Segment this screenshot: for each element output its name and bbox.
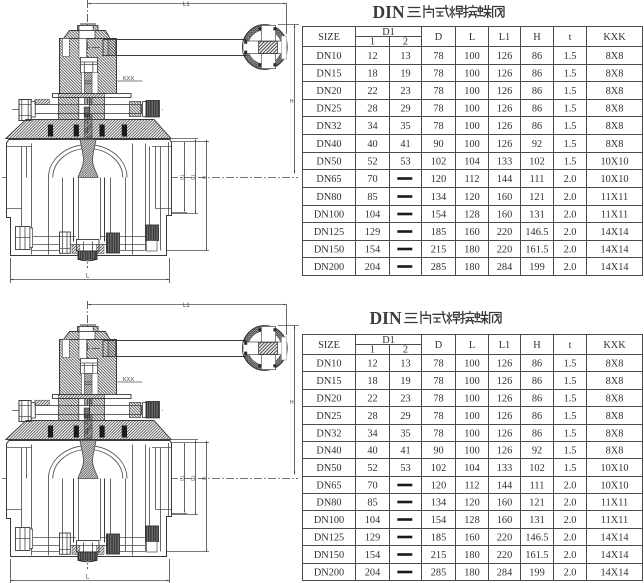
svg-text:2.0: 2.0 bbox=[564, 227, 577, 238]
svg-text:10X10: 10X10 bbox=[600, 481, 628, 492]
svg-text:220: 220 bbox=[497, 245, 512, 256]
svg-text:53: 53 bbox=[400, 463, 410, 474]
svg-text:1.5: 1.5 bbox=[564, 376, 577, 387]
svg-text:1.5: 1.5 bbox=[564, 51, 577, 62]
svg-text:L1: L1 bbox=[499, 32, 510, 43]
svg-text:126: 126 bbox=[497, 86, 512, 97]
svg-text:2.0: 2.0 bbox=[564, 210, 577, 221]
svg-text:2.0: 2.0 bbox=[564, 245, 577, 256]
svg-text:134: 134 bbox=[431, 192, 446, 203]
svg-text:86: 86 bbox=[532, 104, 542, 115]
svg-text:100: 100 bbox=[464, 429, 479, 440]
svg-text:111: 111 bbox=[530, 174, 545, 185]
svg-text:285: 285 bbox=[431, 568, 446, 579]
svg-text:DN25: DN25 bbox=[316, 411, 341, 422]
svg-text:t: t bbox=[569, 32, 572, 43]
svg-text:1.5: 1.5 bbox=[564, 157, 577, 168]
svg-text:DN20: DN20 bbox=[316, 86, 341, 97]
svg-text:160: 160 bbox=[497, 192, 512, 203]
svg-text:126: 126 bbox=[497, 359, 512, 370]
svg-text:100: 100 bbox=[464, 394, 479, 405]
svg-text:100: 100 bbox=[464, 359, 479, 370]
svg-text:199: 199 bbox=[529, 568, 544, 579]
svg-text:160: 160 bbox=[497, 515, 512, 526]
svg-text:78: 78 bbox=[433, 394, 443, 405]
svg-text:154: 154 bbox=[431, 515, 446, 526]
svg-text:126: 126 bbox=[497, 446, 512, 457]
svg-text:DN100: DN100 bbox=[314, 210, 344, 221]
svg-text:126: 126 bbox=[497, 104, 512, 115]
svg-text:DN10: DN10 bbox=[316, 359, 341, 370]
svg-text:8X8: 8X8 bbox=[606, 359, 624, 370]
svg-text:23: 23 bbox=[400, 86, 410, 97]
svg-text:126: 126 bbox=[497, 69, 512, 80]
svg-text:53: 53 bbox=[400, 157, 410, 168]
svg-text:2.0: 2.0 bbox=[564, 192, 577, 203]
svg-text:128: 128 bbox=[464, 515, 479, 526]
svg-text:78: 78 bbox=[433, 429, 443, 440]
svg-text:8X8: 8X8 bbox=[606, 104, 624, 115]
svg-text:8X8: 8X8 bbox=[606, 376, 624, 387]
svg-text:DN40: DN40 bbox=[316, 139, 341, 150]
svg-text:154: 154 bbox=[365, 245, 380, 256]
svg-text:134: 134 bbox=[431, 498, 446, 509]
svg-text:100: 100 bbox=[464, 411, 479, 422]
svg-text:L1: L1 bbox=[499, 340, 510, 351]
svg-text:14X14: 14X14 bbox=[600, 262, 628, 273]
svg-text:H: H bbox=[533, 340, 541, 351]
svg-text:100: 100 bbox=[464, 121, 479, 132]
svg-text:DN50: DN50 bbox=[316, 463, 341, 474]
svg-text:2.0: 2.0 bbox=[564, 262, 577, 273]
svg-text:220: 220 bbox=[497, 533, 512, 544]
svg-text:199: 199 bbox=[529, 262, 544, 273]
svg-text:28: 28 bbox=[367, 104, 377, 115]
svg-text:92: 92 bbox=[532, 446, 542, 457]
svg-text:126: 126 bbox=[497, 376, 512, 387]
svg-text:78: 78 bbox=[433, 86, 443, 97]
svg-text:78: 78 bbox=[433, 51, 443, 62]
svg-text:1.5: 1.5 bbox=[564, 104, 577, 115]
svg-text:112: 112 bbox=[464, 481, 479, 492]
svg-text:29: 29 bbox=[400, 104, 410, 115]
svg-text:120: 120 bbox=[464, 192, 479, 203]
svg-text:100: 100 bbox=[464, 51, 479, 62]
svg-text:284: 284 bbox=[497, 262, 512, 273]
svg-text:129: 129 bbox=[365, 533, 380, 544]
svg-text:100: 100 bbox=[464, 139, 479, 150]
svg-text:34: 34 bbox=[367, 121, 377, 132]
svg-text:DIN: DIN bbox=[370, 308, 402, 328]
svg-text:85: 85 bbox=[367, 498, 377, 509]
svg-text:t: t bbox=[569, 340, 572, 351]
svg-text:126: 126 bbox=[497, 121, 512, 132]
svg-text:KXK: KXK bbox=[603, 340, 626, 351]
svg-text:L: L bbox=[469, 340, 475, 351]
svg-text:215: 215 bbox=[431, 550, 446, 561]
svg-text:DN25: DN25 bbox=[316, 104, 341, 115]
svg-text:121: 121 bbox=[529, 192, 544, 203]
svg-text:111: 111 bbox=[530, 481, 545, 492]
svg-text:112: 112 bbox=[464, 174, 479, 185]
svg-text:146.5: 146.5 bbox=[525, 227, 548, 238]
svg-text:2.0: 2.0 bbox=[564, 498, 577, 509]
svg-text:144: 144 bbox=[497, 174, 512, 185]
svg-text:70: 70 bbox=[367, 481, 377, 492]
svg-text:100: 100 bbox=[464, 69, 479, 80]
svg-text:H: H bbox=[533, 32, 541, 43]
svg-text:1.5: 1.5 bbox=[564, 86, 577, 97]
svg-text:DN20: DN20 bbox=[316, 394, 341, 405]
svg-text:128: 128 bbox=[464, 210, 479, 221]
svg-text:185: 185 bbox=[431, 533, 446, 544]
svg-text:1.5: 1.5 bbox=[564, 359, 577, 370]
svg-text:1: 1 bbox=[370, 37, 375, 48]
svg-text:104: 104 bbox=[365, 210, 380, 221]
svg-text:DN80: DN80 bbox=[316, 192, 341, 203]
svg-text:41: 41 bbox=[400, 139, 410, 150]
svg-text:285: 285 bbox=[431, 262, 446, 273]
svg-text:28: 28 bbox=[367, 411, 377, 422]
svg-text:1.5: 1.5 bbox=[564, 463, 577, 474]
svg-text:11X11: 11X11 bbox=[601, 192, 628, 203]
svg-text:DN125: DN125 bbox=[314, 227, 344, 238]
svg-text:133: 133 bbox=[497, 463, 512, 474]
svg-text:18: 18 bbox=[367, 376, 377, 387]
svg-text:126: 126 bbox=[497, 429, 512, 440]
svg-text:52: 52 bbox=[367, 157, 377, 168]
svg-text:8X8: 8X8 bbox=[606, 446, 624, 457]
svg-text:14X14: 14X14 bbox=[600, 533, 628, 544]
svg-text:131: 131 bbox=[529, 210, 544, 221]
svg-text:18: 18 bbox=[367, 69, 377, 80]
svg-text:78: 78 bbox=[433, 121, 443, 132]
svg-text:35: 35 bbox=[400, 121, 410, 132]
svg-text:154: 154 bbox=[365, 550, 380, 561]
svg-text:8X8: 8X8 bbox=[606, 86, 624, 97]
svg-text:12: 12 bbox=[367, 51, 377, 62]
svg-text:126: 126 bbox=[497, 411, 512, 422]
svg-text:KXK: KXK bbox=[603, 32, 626, 43]
svg-text:DN80: DN80 bbox=[316, 498, 341, 509]
svg-text:11X11: 11X11 bbox=[601, 515, 628, 526]
svg-text:131: 131 bbox=[529, 515, 544, 526]
svg-text:52: 52 bbox=[367, 463, 377, 474]
svg-text:13: 13 bbox=[400, 359, 410, 370]
svg-text:DN100: DN100 bbox=[314, 515, 344, 526]
svg-text:40: 40 bbox=[367, 139, 377, 150]
svg-text:154: 154 bbox=[431, 210, 446, 221]
svg-text:86: 86 bbox=[532, 359, 542, 370]
svg-text:146.5: 146.5 bbox=[525, 533, 548, 544]
svg-text:180: 180 bbox=[464, 245, 479, 256]
svg-text:1.5: 1.5 bbox=[564, 139, 577, 150]
svg-text:DN200: DN200 bbox=[314, 568, 344, 579]
svg-text:100: 100 bbox=[464, 104, 479, 115]
svg-text:160: 160 bbox=[464, 533, 479, 544]
svg-text:185: 185 bbox=[431, 227, 446, 238]
svg-text:SIZE: SIZE bbox=[318, 32, 340, 43]
svg-text:11X11: 11X11 bbox=[601, 498, 628, 509]
svg-text:D1: D1 bbox=[382, 27, 395, 38]
svg-text:D: D bbox=[435, 32, 443, 43]
svg-text:90: 90 bbox=[433, 139, 443, 150]
svg-text:29: 29 bbox=[400, 411, 410, 422]
svg-text:2.0: 2.0 bbox=[564, 568, 577, 579]
svg-text:161.5: 161.5 bbox=[525, 550, 548, 561]
svg-text:78: 78 bbox=[433, 411, 443, 422]
svg-text:85: 85 bbox=[367, 192, 377, 203]
svg-text:129: 129 bbox=[365, 227, 380, 238]
svg-text:40: 40 bbox=[367, 446, 377, 457]
svg-text:126: 126 bbox=[497, 139, 512, 150]
svg-text:121: 121 bbox=[529, 498, 544, 509]
svg-text:13: 13 bbox=[400, 51, 410, 62]
svg-text:180: 180 bbox=[464, 550, 479, 561]
svg-text:DN125: DN125 bbox=[314, 533, 344, 544]
svg-text:14X14: 14X14 bbox=[600, 550, 628, 561]
svg-text:86: 86 bbox=[532, 376, 542, 387]
svg-text:8X8: 8X8 bbox=[606, 139, 624, 150]
svg-text:1.5: 1.5 bbox=[564, 69, 577, 80]
svg-text:1.5: 1.5 bbox=[564, 411, 577, 422]
svg-text:19: 19 bbox=[400, 69, 410, 80]
svg-text:104: 104 bbox=[365, 515, 380, 526]
svg-text:220: 220 bbox=[497, 227, 512, 238]
svg-text:104: 104 bbox=[464, 157, 479, 168]
svg-text:90: 90 bbox=[433, 446, 443, 457]
svg-text:10X10: 10X10 bbox=[600, 157, 628, 168]
svg-text:120: 120 bbox=[431, 481, 446, 492]
svg-text:102: 102 bbox=[529, 463, 544, 474]
svg-text:DN150: DN150 bbox=[314, 245, 344, 256]
svg-text:78: 78 bbox=[433, 376, 443, 387]
svg-text:144: 144 bbox=[497, 481, 512, 492]
svg-text:L: L bbox=[469, 32, 475, 43]
svg-text:86: 86 bbox=[532, 394, 542, 405]
svg-text:204: 204 bbox=[365, 262, 380, 273]
svg-text:1.5: 1.5 bbox=[564, 446, 577, 457]
svg-text:DN15: DN15 bbox=[316, 69, 341, 80]
svg-text:2.0: 2.0 bbox=[564, 481, 577, 492]
svg-text:104: 104 bbox=[464, 463, 479, 474]
svg-text:284: 284 bbox=[497, 568, 512, 579]
svg-text:8X8: 8X8 bbox=[606, 51, 624, 62]
svg-text:8X8: 8X8 bbox=[606, 121, 624, 132]
svg-text:DN65: DN65 bbox=[316, 481, 341, 492]
svg-text:35: 35 bbox=[400, 429, 410, 440]
svg-text:1.5: 1.5 bbox=[564, 121, 577, 132]
svg-text:SIZE: SIZE bbox=[318, 340, 340, 351]
svg-text:8X8: 8X8 bbox=[606, 429, 624, 440]
svg-text:100: 100 bbox=[464, 376, 479, 387]
svg-text:D: D bbox=[435, 340, 443, 351]
svg-text:120: 120 bbox=[464, 498, 479, 509]
svg-text:22: 22 bbox=[367, 394, 377, 405]
svg-text:14X14: 14X14 bbox=[600, 245, 628, 256]
svg-text:86: 86 bbox=[532, 121, 542, 132]
svg-text:126: 126 bbox=[497, 394, 512, 405]
svg-text:23: 23 bbox=[400, 394, 410, 405]
svg-text:10X10: 10X10 bbox=[600, 174, 628, 185]
svg-text:160: 160 bbox=[497, 210, 512, 221]
svg-text:2: 2 bbox=[403, 345, 408, 356]
svg-text:19: 19 bbox=[400, 376, 410, 387]
svg-text:8X8: 8X8 bbox=[606, 69, 624, 80]
svg-text:86: 86 bbox=[532, 51, 542, 62]
svg-text:2.0: 2.0 bbox=[564, 533, 577, 544]
svg-text:D1: D1 bbox=[382, 335, 395, 346]
svg-text:8X8: 8X8 bbox=[606, 394, 624, 405]
svg-text:78: 78 bbox=[433, 359, 443, 370]
svg-text:2.0: 2.0 bbox=[564, 174, 577, 185]
svg-text:DN65: DN65 bbox=[316, 174, 341, 185]
svg-text:DN32: DN32 bbox=[316, 429, 341, 440]
svg-text:1: 1 bbox=[370, 345, 375, 356]
svg-text:78: 78 bbox=[433, 69, 443, 80]
svg-text:1.5: 1.5 bbox=[564, 429, 577, 440]
svg-text:161.5: 161.5 bbox=[525, 245, 548, 256]
svg-text:220: 220 bbox=[497, 550, 512, 561]
svg-text:DN200: DN200 bbox=[314, 262, 344, 273]
svg-text:DN150: DN150 bbox=[314, 550, 344, 561]
svg-text:180: 180 bbox=[464, 262, 479, 273]
svg-text:215: 215 bbox=[431, 245, 446, 256]
svg-text:86: 86 bbox=[532, 411, 542, 422]
svg-text:133: 133 bbox=[497, 157, 512, 168]
svg-text:11X11: 11X11 bbox=[601, 210, 628, 221]
svg-text:204: 204 bbox=[365, 568, 380, 579]
svg-text:120: 120 bbox=[431, 174, 446, 185]
svg-text:70: 70 bbox=[367, 174, 377, 185]
svg-text:14X14: 14X14 bbox=[600, 227, 628, 238]
svg-text:DN15: DN15 bbox=[316, 376, 341, 387]
svg-text:100: 100 bbox=[464, 86, 479, 97]
svg-text:86: 86 bbox=[532, 69, 542, 80]
svg-text:160: 160 bbox=[497, 498, 512, 509]
svg-text:34: 34 bbox=[367, 429, 377, 440]
svg-text:86: 86 bbox=[532, 86, 542, 97]
svg-text:DN40: DN40 bbox=[316, 446, 341, 457]
svg-text:10X10: 10X10 bbox=[600, 463, 628, 474]
svg-text:102: 102 bbox=[431, 463, 446, 474]
svg-text:102: 102 bbox=[529, 157, 544, 168]
svg-text:160: 160 bbox=[464, 227, 479, 238]
svg-text:22: 22 bbox=[367, 86, 377, 97]
svg-text:12: 12 bbox=[367, 359, 377, 370]
svg-text:126: 126 bbox=[497, 51, 512, 62]
svg-text:14X14: 14X14 bbox=[600, 568, 628, 579]
svg-text:86: 86 bbox=[532, 429, 542, 440]
svg-text:2.0: 2.0 bbox=[564, 515, 577, 526]
svg-text:DIN: DIN bbox=[373, 2, 405, 22]
svg-text:100: 100 bbox=[464, 446, 479, 457]
svg-text:2: 2 bbox=[403, 37, 408, 48]
svg-text:78: 78 bbox=[433, 104, 443, 115]
svg-text:DN50: DN50 bbox=[316, 157, 341, 168]
svg-text:92: 92 bbox=[532, 139, 542, 150]
svg-text:2.0: 2.0 bbox=[564, 550, 577, 561]
svg-text:41: 41 bbox=[400, 446, 410, 457]
svg-text:DN32: DN32 bbox=[316, 121, 341, 132]
svg-text:8X8: 8X8 bbox=[606, 411, 624, 422]
svg-text:180: 180 bbox=[464, 568, 479, 579]
svg-text:DN10: DN10 bbox=[316, 51, 341, 62]
svg-text:102: 102 bbox=[431, 157, 446, 168]
svg-text:1.5: 1.5 bbox=[564, 394, 577, 405]
